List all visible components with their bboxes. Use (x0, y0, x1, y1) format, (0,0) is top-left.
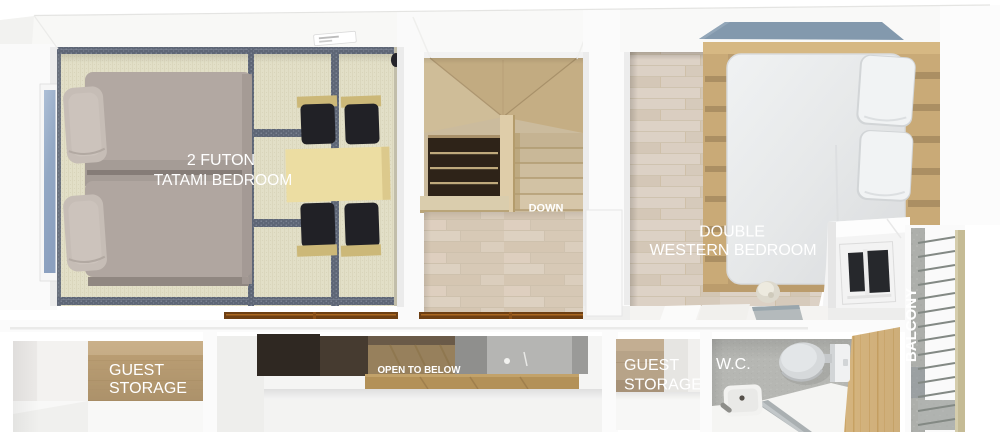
svg-text:GUEST: GUEST (624, 357, 679, 374)
svg-text:STORAGE: STORAGE (624, 377, 702, 394)
svg-text:OPEN TO BELOW: OPEN TO BELOW (377, 365, 461, 376)
svg-text:WESTERN BEDROOM: WESTERN BEDROOM (649, 242, 816, 259)
svg-text:2 FUTON: 2 FUTON (187, 152, 255, 169)
svg-text:STORAGE: STORAGE (109, 380, 187, 397)
svg-text:BALCONY: BALCONY (903, 288, 920, 362)
svg-text:W.C.: W.C. (716, 356, 751, 373)
svg-text:TATAMI BEDROOM: TATAMI BEDROOM (154, 172, 293, 189)
svg-text:GUEST: GUEST (109, 362, 164, 379)
svg-text:DOUBLE: DOUBLE (699, 224, 765, 241)
